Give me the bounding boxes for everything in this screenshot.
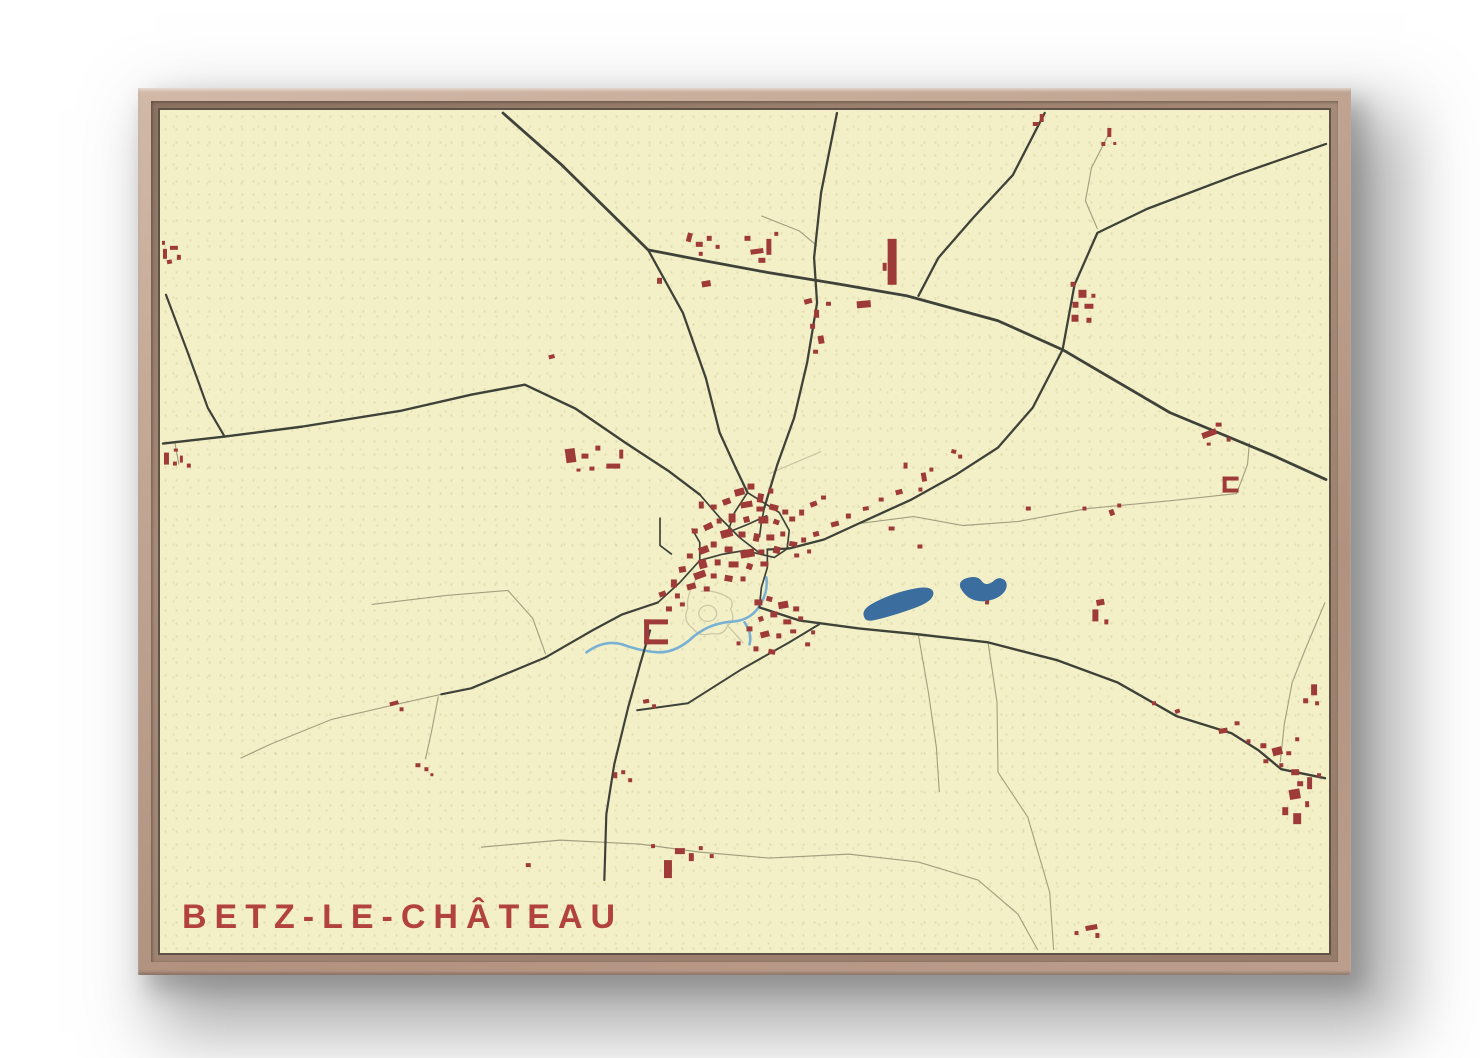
building [1286,751,1291,755]
map-canvas: BETZ-LE-CHÂTEAU [160,110,1329,953]
building [675,593,680,598]
building [704,586,710,591]
building [793,606,799,611]
building [565,448,577,463]
building [1107,128,1111,137]
minor-road [175,443,179,465]
building [773,519,780,526]
building [430,773,433,776]
building [173,462,177,466]
building [389,700,399,706]
building [811,630,815,634]
map-title: BETZ-LE-CHÂTEAU [182,898,623,937]
building [737,641,741,645]
building [729,561,739,567]
building [879,498,884,502]
building [1072,315,1079,322]
building [581,454,588,459]
building [170,246,178,250]
building [1235,721,1240,725]
building [958,455,962,459]
major-road [163,385,700,495]
building [1307,777,1312,789]
minor-road [1085,133,1109,229]
building [707,236,712,241]
minor-road [372,590,546,654]
building [810,324,815,329]
pond [863,588,933,621]
building [807,549,811,553]
building [703,522,714,531]
major-road [441,602,658,694]
building [1223,477,1227,493]
building [710,854,714,858]
building [734,487,745,496]
building [1117,504,1121,508]
building [1086,318,1091,323]
building [1040,114,1044,122]
building [1085,924,1098,931]
building [758,549,764,554]
building [813,350,818,354]
building [743,516,750,523]
building [526,863,531,867]
building [595,446,600,451]
building [790,629,796,633]
building [729,514,736,523]
building [814,310,819,318]
building [798,616,803,620]
building [686,232,693,242]
building [739,532,746,538]
building [720,528,734,539]
major-road [648,250,747,493]
building [745,236,751,241]
building [1288,788,1300,800]
building [805,642,810,646]
building [716,245,720,249]
building [753,646,758,651]
building [177,255,181,260]
building [766,596,773,602]
building [689,853,694,861]
building [722,497,732,505]
major-road [918,113,1044,296]
building [809,500,817,507]
building [696,242,703,247]
building [1096,599,1105,606]
building [929,468,933,472]
building [1026,507,1031,511]
building [1279,763,1283,767]
building [180,456,183,463]
building [163,249,167,259]
building [174,449,178,452]
building [1095,933,1099,938]
building [1033,122,1039,126]
building [758,616,764,622]
building [753,533,760,542]
minor-road [859,443,1250,526]
minor-road [241,694,442,758]
building [799,510,804,516]
major-road [637,624,819,710]
building [1152,701,1156,705]
major-road [759,607,1325,778]
building [400,707,404,711]
building [1260,743,1266,748]
building [619,450,623,459]
building [754,599,762,605]
building [1227,438,1231,442]
building [1315,701,1319,705]
building [746,626,752,631]
building [1317,773,1321,777]
building [711,573,717,578]
building [415,763,420,767]
building [1101,142,1105,146]
building [1073,302,1079,308]
building [699,502,704,509]
river [586,577,766,652]
building [693,570,707,581]
building [789,517,795,522]
building [888,239,897,285]
building [817,335,824,344]
building [758,517,768,524]
building [1104,619,1108,624]
building [666,606,672,611]
major-road [166,295,225,437]
building [699,846,703,850]
pond [960,577,1007,601]
building [895,489,903,496]
building [756,507,763,512]
building [740,548,755,558]
building [766,239,771,255]
building [664,860,672,878]
building [711,505,717,510]
building [1297,781,1303,786]
building [548,354,555,359]
building [904,463,908,469]
building [1084,304,1093,309]
building [917,544,922,548]
street [660,518,672,555]
building [1282,807,1288,815]
building [918,488,922,492]
building [717,519,722,524]
building [1303,698,1308,703]
building [746,563,754,571]
building [862,506,869,511]
building [783,619,791,624]
building [750,248,763,255]
building [1113,142,1116,145]
building [770,611,777,617]
building [889,527,895,531]
building [678,566,686,573]
building [821,496,826,500]
building [857,300,871,308]
building [675,848,685,854]
building [778,601,789,610]
building [724,575,733,582]
building [187,464,191,468]
frame-bevel: BETZ-LE-CHÂTEAU [151,101,1338,962]
building [1091,294,1095,298]
building [577,469,581,472]
building [162,241,165,245]
building [760,561,768,566]
building [801,537,806,542]
building [768,489,773,494]
building [782,510,788,515]
building [613,772,617,778]
building [760,630,770,638]
map-svg [160,110,1329,953]
building [1071,282,1076,287]
building [1311,684,1317,695]
building [830,521,839,528]
frame-inner-edge: BETZ-LE-CHÂTEAU [158,108,1331,955]
major-road [503,113,1326,480]
building [701,280,711,287]
building [715,559,721,565]
building [725,546,733,552]
river [745,622,751,644]
building [1293,813,1301,824]
building [167,259,173,264]
building [789,541,798,547]
building [776,633,781,638]
building [1082,507,1086,511]
building [883,263,887,271]
building [1295,737,1299,741]
building [657,278,662,284]
building [687,553,693,558]
building [1263,759,1268,763]
building [780,532,785,537]
building [699,252,703,256]
building [921,472,927,482]
major-road [767,144,1326,550]
building [643,699,650,704]
building [651,844,655,848]
building [1207,443,1211,446]
building [606,464,620,469]
building [741,576,746,581]
building [769,503,779,511]
wall: { "poster": { "title": "BETZ-LE-CHÂTEAU"… [0,0,1480,1058]
building [1174,709,1180,714]
building [621,770,625,774]
minor-road [988,642,1054,950]
building [1246,739,1250,743]
building [758,258,765,263]
building [164,453,169,465]
building [774,232,778,236]
field-path [728,625,744,643]
building [766,534,774,540]
minor-road [425,696,438,759]
building [794,553,799,557]
building [589,467,594,471]
building [692,529,698,534]
building [1075,931,1079,935]
building [644,639,668,644]
minor-road [918,635,939,792]
building [671,579,677,587]
building [826,302,831,306]
building [628,778,632,782]
building [747,484,754,490]
poster-frame: BETZ-LE-CHÂTEAU [138,88,1351,975]
building [686,582,696,590]
building [1092,609,1098,621]
major-road [764,113,837,508]
building [1216,423,1222,427]
building [846,514,851,519]
building [1291,769,1299,775]
building [813,531,820,537]
building [711,541,717,547]
building [652,704,656,708]
building [951,449,957,454]
field-path [699,605,717,621]
building [1305,801,1309,807]
building [1108,509,1115,516]
building [680,602,685,606]
building [985,600,989,604]
building [804,298,813,305]
building [424,767,428,771]
building [1079,290,1087,298]
minor-road [1280,602,1325,762]
